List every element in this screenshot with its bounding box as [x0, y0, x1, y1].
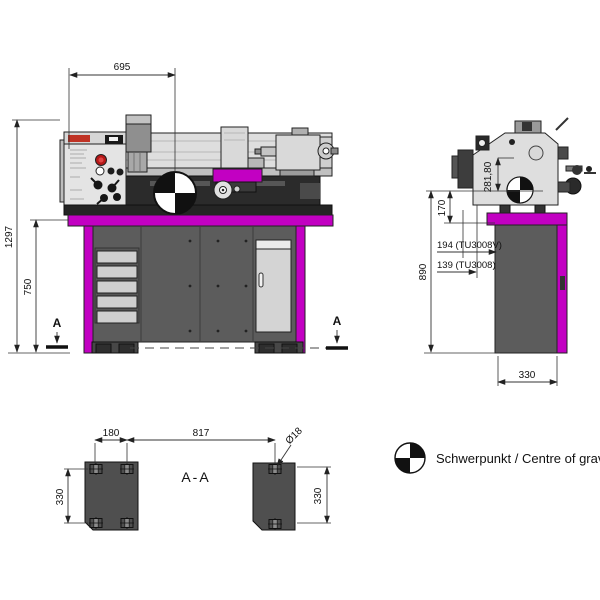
- section-arrow-a-left: A: [53, 316, 62, 330]
- chuck-guard: [126, 115, 151, 172]
- door-latch: [560, 276, 565, 290]
- technical-drawing-lathe: 695 1297 750 A A 281,80 170 890 194 (TU3…: [0, 0, 600, 600]
- dim-180: 180: [103, 428, 120, 439]
- headstock-front: [60, 132, 126, 211]
- dim-139-tu3008: 139 (TU3008): [437, 260, 496, 271]
- foot-plate-left: [85, 462, 138, 530]
- cabinet-door: [256, 240, 291, 332]
- cog-icon: [507, 177, 533, 203]
- drawing-canvas: 695 1297 750 A A 281,80 170 890 194 (TU3…: [0, 0, 600, 600]
- dim-1297: 1297: [4, 225, 15, 248]
- dim-281-80: 281,80: [483, 161, 494, 192]
- table-top: [68, 215, 333, 226]
- dim-750: 750: [23, 278, 34, 295]
- stand-front: [68, 215, 333, 353]
- section-label: A-A: [181, 469, 210, 485]
- cog-icon: [395, 443, 425, 473]
- dim-817: 817: [193, 428, 210, 439]
- dim-695: 695: [114, 62, 131, 73]
- dim-330-side: 330: [519, 370, 536, 381]
- dim-330-left: 330: [55, 488, 66, 505]
- legend-label: Schwerpunkt / Centre of gravity: [436, 451, 600, 466]
- section-arrow-a-right: A: [333, 314, 342, 328]
- cog-icon: [154, 172, 196, 214]
- dim-330-right: 330: [313, 487, 324, 504]
- brand-label: [68, 135, 90, 142]
- dim-170: 170: [437, 199, 448, 216]
- stand-side: [487, 213, 567, 353]
- dim-194-tu3008v: 194 (TU3008V): [437, 240, 502, 251]
- door-handle: [259, 273, 263, 287]
- dim-890: 890: [418, 263, 429, 280]
- drawer-unit: [95, 248, 139, 323]
